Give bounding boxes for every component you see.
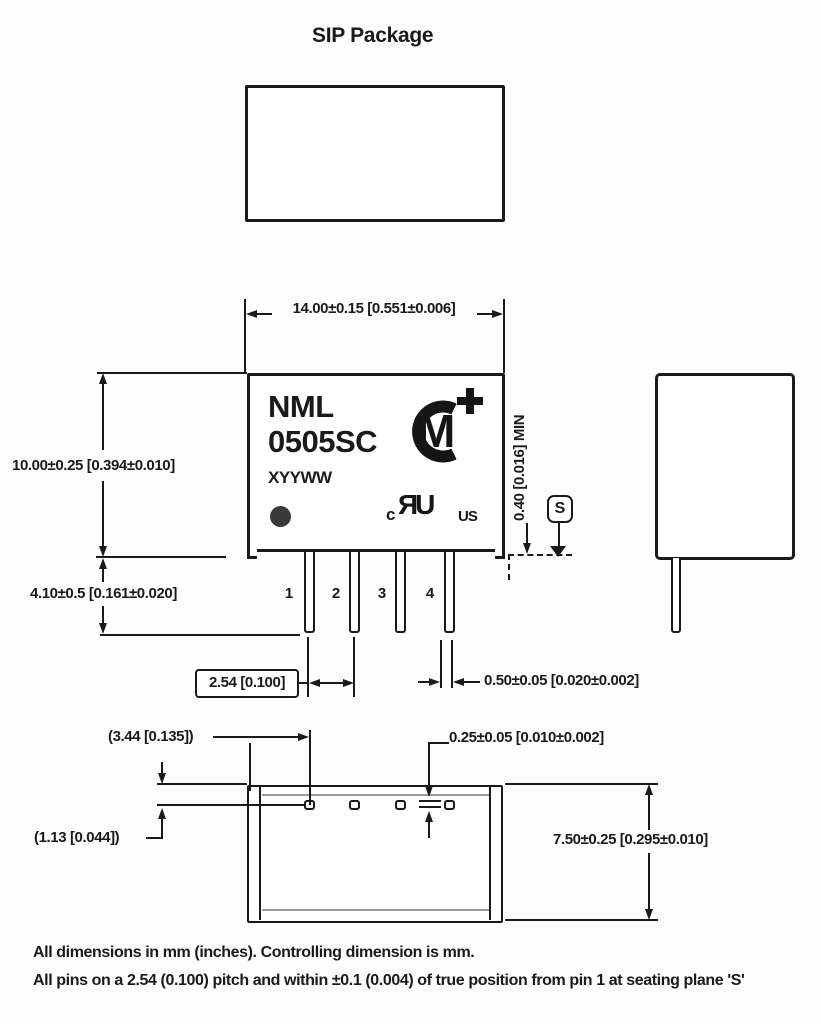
dim-line — [419, 806, 441, 808]
arrow-left-icon — [453, 678, 464, 686]
dim-line — [307, 637, 309, 697]
dim-line — [505, 919, 658, 921]
dim-line — [558, 523, 560, 547]
dim-line — [505, 783, 658, 785]
bottom-view-edge-line — [262, 794, 489, 796]
ul-c-letter: c — [386, 505, 395, 524]
dim-line — [102, 383, 104, 450]
dim-line — [97, 372, 247, 374]
dim-line — [309, 730, 311, 805]
dim-line — [353, 637, 355, 697]
dim-line — [251, 736, 300, 738]
dim-line — [428, 822, 430, 838]
arrow-up-icon — [158, 808, 166, 819]
arrow-down-icon — [523, 543, 531, 554]
dim-line — [102, 481, 104, 546]
seating-plane-datum-label: S — [547, 495, 573, 523]
top-view-outline — [245, 85, 505, 222]
ul-recognized-mark-icon: c ЯU US — [386, 480, 484, 524]
seating-plane-dashed-line — [508, 554, 510, 580]
arrow-down-icon — [99, 546, 107, 557]
body-height-dimension: 10.00±0.25 [0.394±0.010] — [12, 458, 175, 475]
pin-4 — [444, 552, 455, 633]
dim-line — [157, 783, 247, 785]
arrow-down-icon — [645, 909, 653, 920]
note-pin-pitch-tolerance: All pins on a 2.54 (0.100) pitch and wit… — [33, 972, 744, 990]
bottom-view-edge-line — [262, 909, 489, 911]
pad-inset-dimension: (1.13 [0.044]) — [34, 830, 119, 847]
dim-line — [320, 682, 344, 684]
standoff-dimension: 0.40 [0.016] MIN — [511, 369, 529, 521]
murata-m-letter: M — [417, 405, 455, 457]
dim-line — [428, 742, 430, 787]
arrow-left-icon — [309, 679, 320, 687]
body-foot-right — [495, 546, 505, 559]
dim-line — [429, 742, 449, 744]
ul-us-letters: US — [458, 508, 478, 524]
pin-1 — [304, 552, 315, 633]
dim-line — [102, 606, 104, 624]
dim-line — [249, 743, 251, 791]
body-foot-left — [247, 546, 257, 559]
side-view-outline — [655, 373, 795, 560]
arrow-right-icon — [298, 733, 309, 741]
dim-line — [161, 819, 163, 839]
body-width-dimension: 14.00±0.15 [0.551±0.006] — [272, 301, 476, 318]
arrow-right-icon — [429, 678, 440, 686]
arrow-down-icon — [99, 623, 107, 634]
pin-4-number: 4 — [423, 585, 437, 602]
pin-length-dimension: 4.10±0.5 [0.161±0.020] — [30, 586, 177, 603]
arrow-right-icon — [492, 310, 503, 318]
bottom-view-side-wall — [489, 787, 491, 920]
dim-line — [419, 800, 441, 802]
dim-line — [464, 681, 480, 683]
dim-line — [503, 299, 505, 373]
dim-line — [146, 837, 162, 839]
model-number: 0505SC — [268, 424, 377, 461]
dim-line — [648, 794, 650, 830]
dim-line — [213, 736, 251, 738]
dim-line — [477, 313, 492, 315]
page-title: SIP Package — [312, 24, 433, 48]
arrow-down-icon — [425, 786, 433, 797]
murata-plus-horizontal — [457, 397, 483, 405]
pin1-indicator-dot — [270, 506, 291, 527]
murata-logo-icon: M — [404, 386, 484, 470]
side-view-pin — [671, 558, 681, 633]
note-controlling-dimension: All dimensions in mm (inches). Controlli… — [33, 944, 474, 962]
pad-4 — [444, 800, 455, 810]
body-depth-dimension: 7.50±0.25 [0.295±0.010] — [553, 832, 708, 849]
pad-3 — [395, 800, 406, 810]
dim-line — [440, 640, 442, 688]
date-code: XYYWW — [268, 468, 332, 488]
arrow-left-icon — [246, 310, 257, 318]
pad-thickness-dimension: 0.25±0.05 [0.010±0.002] — [449, 730, 604, 747]
dim-line — [526, 523, 528, 544]
pad-row-extension-line — [157, 804, 304, 806]
pin-2-number: 2 — [329, 585, 343, 602]
dim-line — [257, 313, 272, 315]
pin-2 — [349, 552, 360, 633]
pin-width-dimension: 0.50±0.05 [0.020±0.002] — [484, 673, 639, 690]
bottom-view-side-wall — [259, 787, 261, 920]
dim-line — [100, 634, 300, 636]
dim-line — [96, 556, 226, 558]
pin-pitch-dimension: 2.54 [0.100] — [195, 669, 299, 698]
pin-3-number: 3 — [375, 585, 389, 602]
ul-ru-letters: ЯU — [398, 489, 434, 520]
package-drawing-sheet: SIP Package 14.00±0.15 [0.551±0.006] NML… — [0, 0, 821, 1024]
pad-2 — [349, 800, 360, 810]
dim-line — [648, 853, 650, 911]
dim-line — [102, 568, 104, 582]
pin-3 — [395, 552, 406, 633]
datum-triangle-icon — [550, 546, 566, 557]
arrow-up-icon — [425, 811, 433, 822]
arrow-right-icon — [343, 679, 354, 687]
pin1-inset-dimension: (3.44 [0.135]) — [108, 729, 193, 746]
pin-1-number: 1 — [282, 585, 296, 602]
model-name: NML — [268, 389, 334, 426]
